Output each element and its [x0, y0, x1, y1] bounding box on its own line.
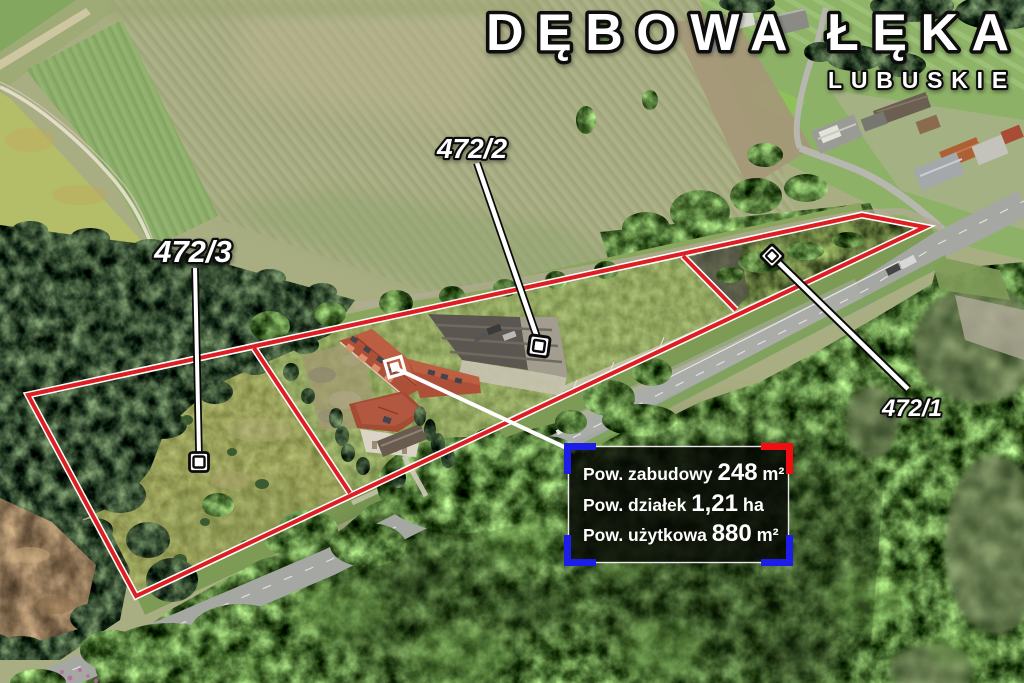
svg-text:472/1: 472/1	[881, 395, 942, 422]
svg-text:DĘBOWA ŁĘKA: DĘBOWA ŁĘKA	[486, 4, 1023, 62]
svg-text:Pow. działek 1,21 ha: Pow. działek 1,21 ha	[583, 490, 765, 517]
svg-text:Pow. zabudowy 248 m²: Pow. zabudowy 248 m²	[583, 459, 784, 486]
svg-text:472/3: 472/3	[153, 234, 232, 269]
svg-text:472/2: 472/2	[436, 133, 507, 164]
svg-text:Pow. użytkowa 880 m²: Pow. użytkowa 880 m²	[583, 520, 779, 547]
svg-text:LUBUSKIE: LUBUSKIE	[828, 67, 1016, 93]
